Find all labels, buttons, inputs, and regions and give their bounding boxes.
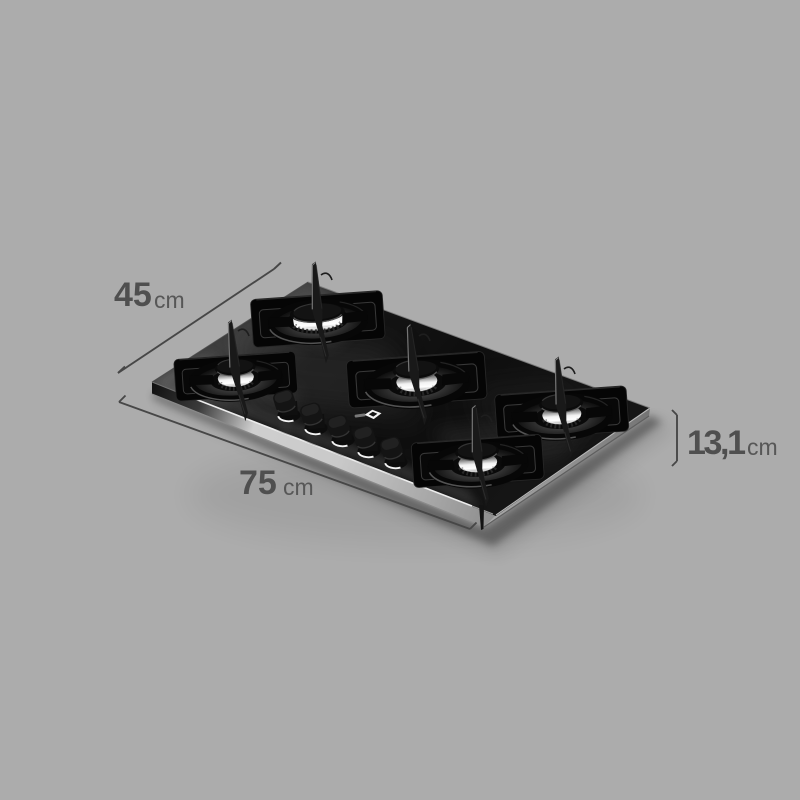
svg-text:cm: cm: [154, 287, 185, 313]
svg-text:cm: cm: [747, 434, 778, 460]
svg-text:cm: cm: [283, 474, 314, 500]
svg-text:13,1: 13,1: [687, 424, 745, 462]
svg-text:45: 45: [114, 276, 152, 314]
svg-text:75: 75: [239, 464, 277, 502]
